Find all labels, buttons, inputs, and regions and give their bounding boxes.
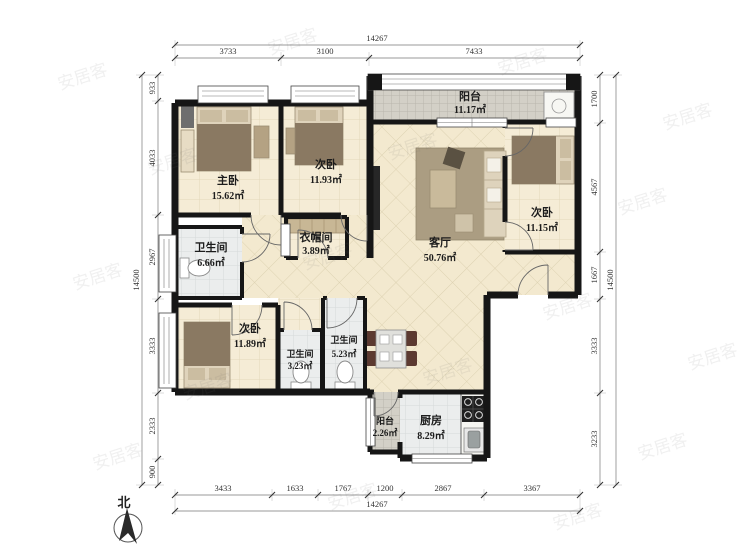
svg-text:2333: 2333 [147,418,157,435]
balcony-cabinet [544,92,574,120]
svg-text:14500: 14500 [605,269,615,290]
svg-text:14500: 14500 [131,269,141,290]
svg-text:阳台: 阳台 [376,415,394,426]
svg-text:3367: 3367 [524,483,541,493]
balcony-top-window [368,74,580,90]
svg-text:15.62㎡: 15.62㎡ [212,189,245,202]
svg-text:3433: 3433 [215,483,232,493]
svg-text:11.89㎡: 11.89㎡ [234,337,266,350]
svg-text:卫生间: 卫生间 [330,334,357,345]
bathroom-1-bay-window [159,235,176,292]
svg-text:安居客: 安居客 [55,60,109,94]
bedroom-3-window [546,118,576,127]
svg-text:3333: 3333 [147,338,157,355]
svg-text:3733: 3733 [220,46,237,56]
svg-text:1700: 1700 [589,91,599,108]
svg-text:11.15㎡: 11.15㎡ [526,221,558,234]
svg-text:3.23㎡: 3.23㎡ [288,360,313,371]
dim-left: 14500 933 4033 2967 3333 2333 900 [131,72,161,488]
svg-text:安居客: 安居客 [550,500,604,534]
svg-text:2967: 2967 [147,249,157,266]
svg-text:衣帽间: 衣帽间 [300,230,333,244]
nook-floor [278,298,322,330]
svg-text:次卧: 次卧 [315,157,337,171]
living-balcony-opening [437,118,507,127]
svg-text:3233: 3233 [589,431,599,448]
floor-plan-canvas: 阳台 11.17㎡ 主卧 15.62㎡ 次卧 11.93㎡ 衣帽间 3.89㎡ … [0,0,740,555]
svg-text:11.17㎡: 11.17㎡ [454,103,486,116]
svg-text:2.26㎡: 2.26㎡ [373,427,398,438]
svg-text:8.29㎡: 8.29㎡ [417,429,445,442]
svg-text:4567: 4567 [589,179,599,196]
svg-text:3100: 3100 [317,46,334,56]
svg-text:安居客: 安居客 [615,185,669,219]
north-label: 北 [117,495,130,510]
svg-text:客厅: 客厅 [428,235,451,249]
floor-plan-page: 阳台 11.17㎡ 主卧 15.62㎡ 次卧 11.93㎡ 衣帽间 3.89㎡ … [0,0,740,555]
svg-text:11.93㎡: 11.93㎡ [310,173,342,186]
svg-text:1200: 1200 [377,483,394,493]
svg-text:安居客: 安居客 [685,340,739,374]
svg-text:次卧: 次卧 [239,321,261,335]
svg-text:次卧: 次卧 [531,205,553,219]
svg-text:50.76㎡: 50.76㎡ [424,251,457,264]
kitchen-counter [461,394,486,456]
svg-text:3333: 3333 [589,338,599,355]
compass-needle [119,508,137,544]
master-bay-window [198,86,268,103]
bedroom-2-bay-window [291,86,359,103]
svg-text:主卧: 主卧 [217,173,239,187]
svg-text:1633: 1633 [287,483,304,493]
living-room-sofa-set [416,147,506,240]
svg-text:7433: 7433 [466,46,483,56]
svg-text:2867: 2867 [435,483,452,493]
svg-text:卫生间: 卫生间 [195,240,228,254]
bedroom-2-bed [295,107,343,165]
bedroom-3-bed [512,136,574,184]
svg-text:1667: 1667 [589,267,599,284]
kitchen-window [412,454,472,463]
master-corner-cabinet [181,106,194,128]
svg-text:14267: 14267 [366,33,387,43]
svg-text:6.66㎡: 6.66㎡ [197,256,225,269]
bedroom-2-dresser [286,128,295,154]
svg-text:933: 933 [147,82,157,95]
svg-text:安居客: 安居客 [265,25,319,59]
north-compass: 北 [114,495,142,544]
svg-text:900: 900 [147,466,157,479]
svg-text:5.23㎡: 5.23㎡ [332,348,357,359]
svg-text:厨房: 厨房 [420,413,442,427]
svg-text:安居客: 安居客 [635,430,689,464]
master-bed [197,107,251,171]
master-dresser [254,126,269,158]
svg-text:阳台: 阳台 [459,89,481,103]
svg-text:安居客: 安居客 [70,260,124,294]
svg-text:卫生间: 卫生间 [286,348,313,359]
bedroom-4-bay-window [159,313,176,388]
dim-right: 1700 4567 1667 3333 3233 14500 [589,72,619,488]
svg-text:安居客: 安居客 [90,440,144,474]
cloakroom-window [281,224,290,256]
svg-text:安居客: 安居客 [660,100,714,134]
cloakroom-closet [288,219,345,233]
